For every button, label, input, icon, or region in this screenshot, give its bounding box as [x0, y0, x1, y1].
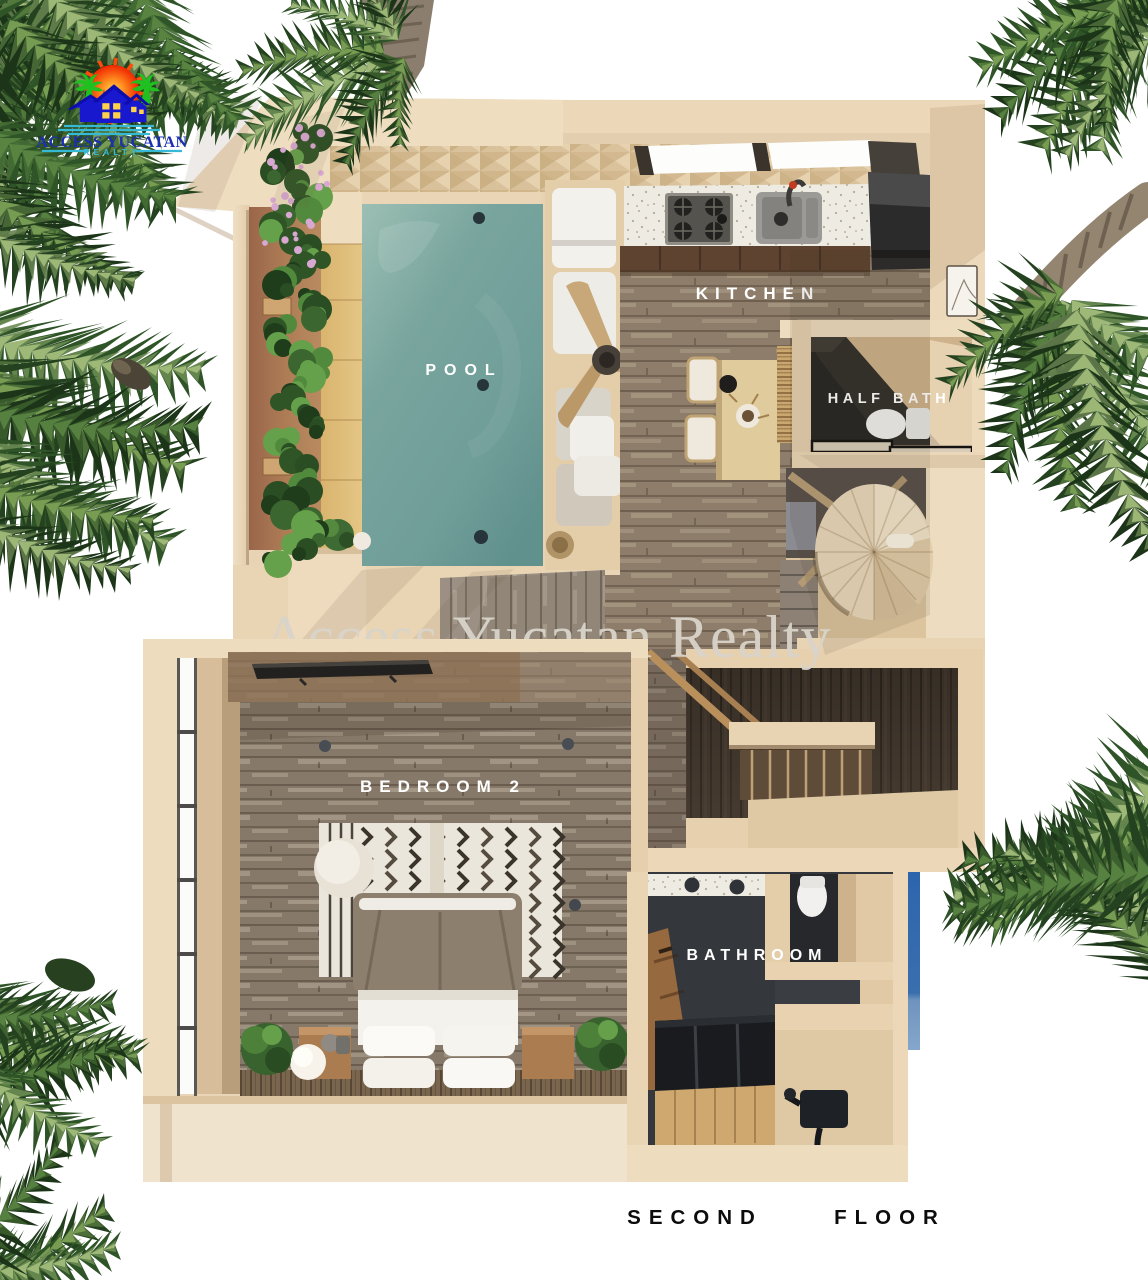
svg-text:REALTY: REALTY — [83, 147, 140, 157]
svg-text:FLOOR: FLOOR — [834, 1206, 946, 1229]
svg-text:BEDROOM 2: BEDROOM 2 — [360, 777, 526, 796]
svg-text:POOL: POOL — [425, 362, 502, 379]
svg-text:SECOND: SECOND — [627, 1206, 763, 1229]
svg-text:BATHROOM: BATHROOM — [686, 947, 827, 964]
